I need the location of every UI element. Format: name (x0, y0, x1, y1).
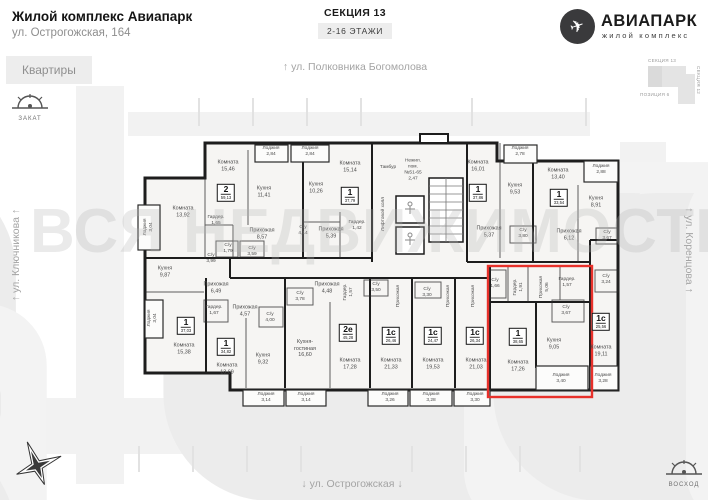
sunrise-label: ВОСХОД (664, 482, 704, 488)
minimap-section13-label: СЕКЦИЯ 13 (648, 58, 676, 63)
sunset-label: ЗАКАТ (10, 116, 50, 122)
street-label-left: ↑ ул. Ключникова ↑ (10, 209, 22, 301)
minimap-section12-label: СЕКЦИЯ 12 (696, 66, 701, 94)
floors-badge: 2-16 ЭТАЖИ (318, 23, 392, 39)
brand-subtitle: жилой комплекс (602, 31, 689, 40)
airplane-icon: ✈ (568, 16, 587, 37)
street-label-bottom: ↓ ул. Острогожская ↓ (301, 478, 402, 490)
section-info: СЕКЦИЯ 13 2-16 ЭТАЖИ (300, 7, 410, 39)
street-label-top: ↑ ул. Полковника Богомолова (283, 61, 427, 73)
building (138, 134, 618, 406)
minimap-shape (648, 66, 695, 104)
apartments-tab[interactable]: Квартиры (6, 56, 92, 84)
staircase (429, 178, 463, 242)
section-title: СЕКЦИЯ 13 (300, 7, 410, 19)
sunset-icon (12, 94, 48, 108)
page-title: Жилой комплекс Авиапарк (12, 9, 192, 24)
brand-name: АВИАПАРК (601, 12, 697, 31)
floor-plan-svg (0, 0, 708, 500)
brand-logo: ✈ (560, 9, 595, 44)
street-label-right: ↑ ул. Коренцова ↑ (683, 207, 695, 293)
address: ул. Острогожская, 164 (12, 27, 131, 39)
minimap-position-label: ПОЗИЦИЯ 6 (640, 92, 670, 97)
